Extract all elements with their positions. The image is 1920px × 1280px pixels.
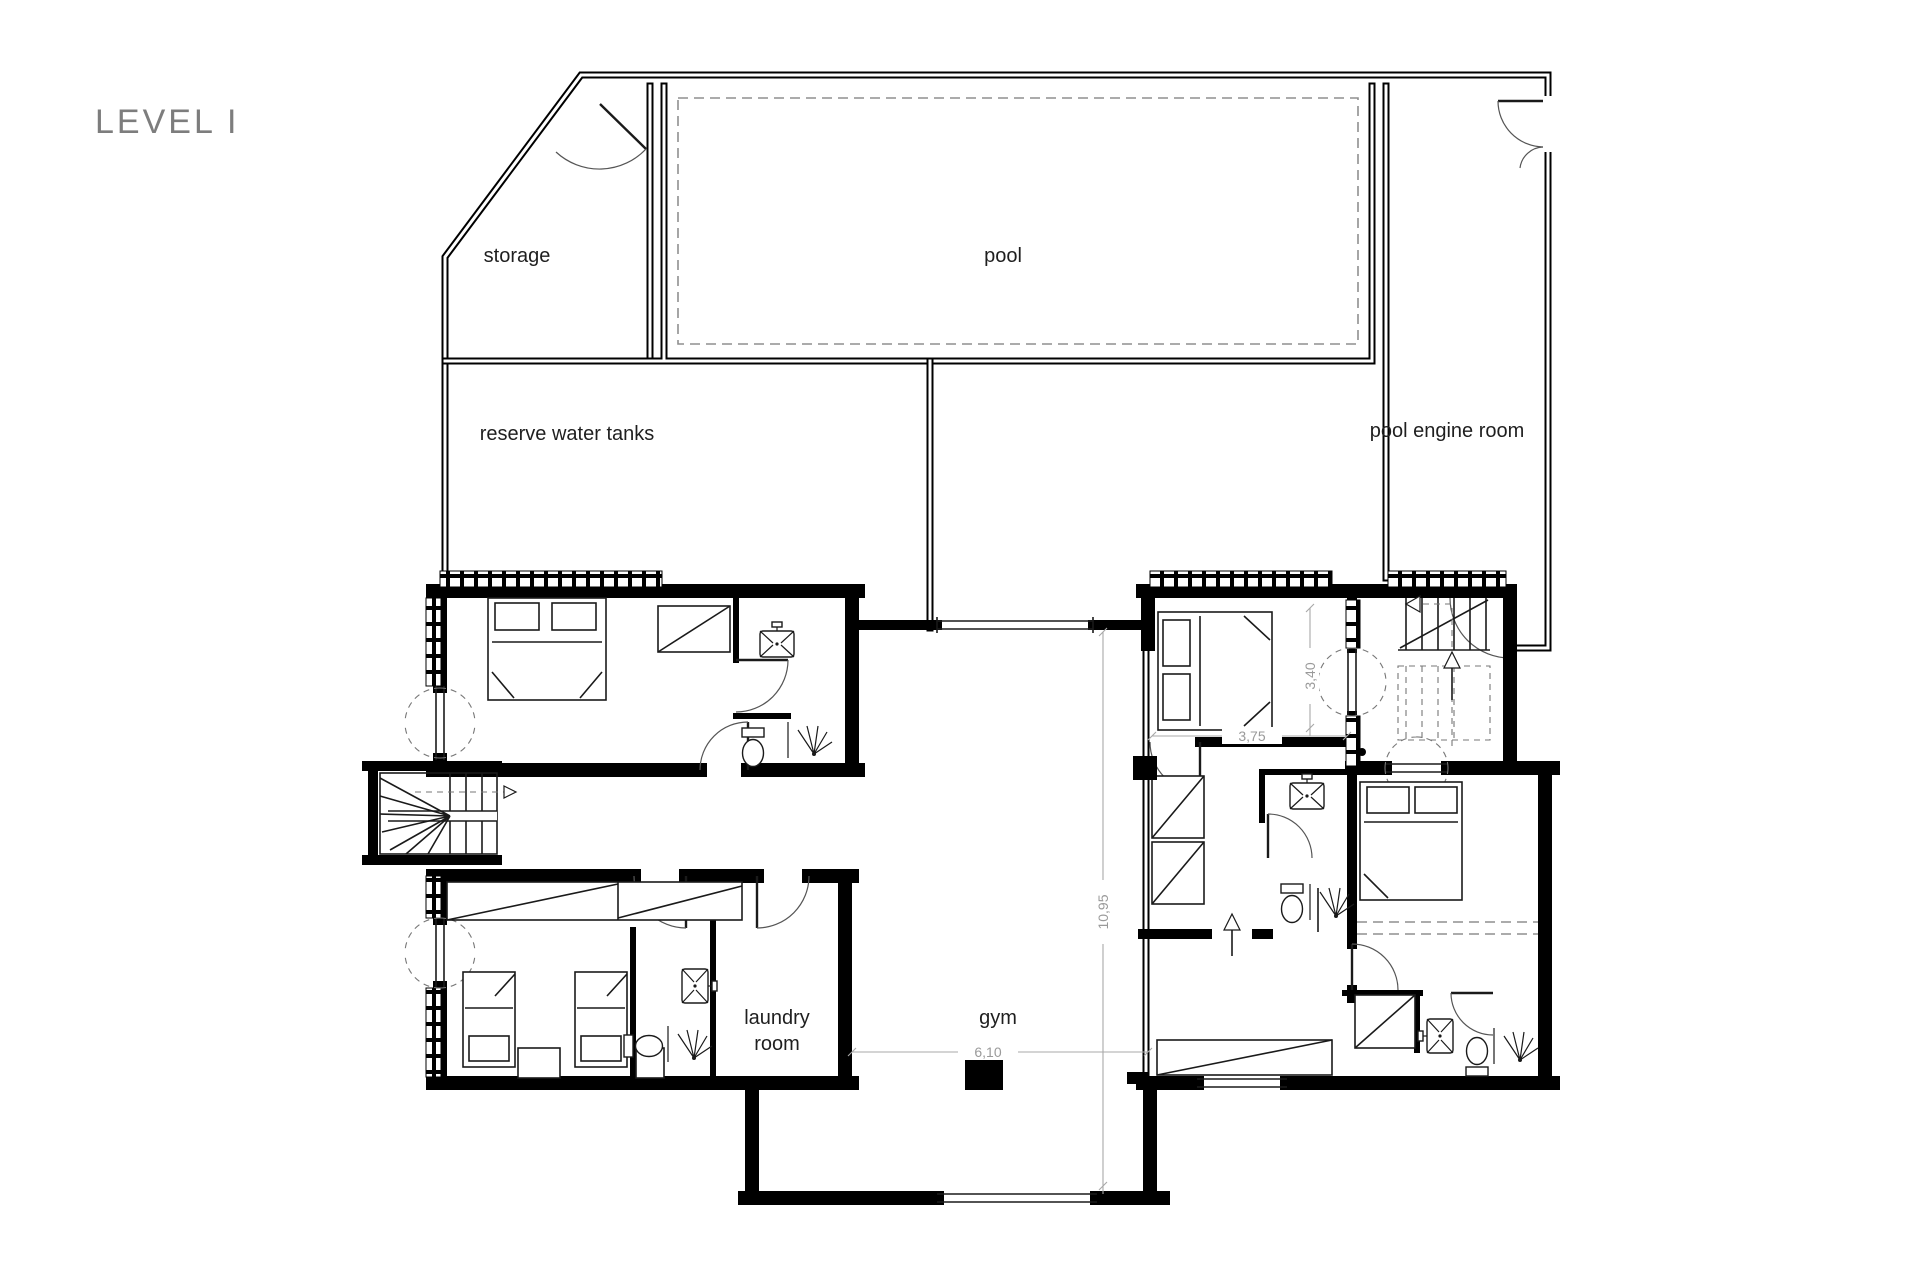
dimension-bedroom-height: 3,40 bbox=[1301, 604, 1319, 736]
floor-plan-page: 3,75 3,40 10,95 6,10 LEVEL I storage poo… bbox=[0, 0, 1920, 1280]
terrace-dashed-lines bbox=[1357, 922, 1538, 934]
room-label-laundry-line2: room bbox=[754, 1033, 800, 1055]
dimension-label: 6,10 bbox=[974, 1044, 1001, 1060]
sink-icon bbox=[1290, 774, 1324, 809]
upper-zone-walls bbox=[445, 75, 1548, 648]
sink-icon bbox=[760, 622, 794, 657]
room-label-storage: storage bbox=[484, 245, 551, 267]
stair-hall-top-door bbox=[1450, 598, 1510, 658]
mid-bath-door bbox=[1268, 814, 1312, 858]
stairs-right-straight bbox=[1398, 596, 1490, 746]
shower-icon bbox=[788, 722, 832, 758]
toilet-icon bbox=[624, 1035, 663, 1057]
laundry-door bbox=[757, 876, 809, 928]
dimension-label: 3,75 bbox=[1238, 728, 1265, 744]
page-title: LEVEL I bbox=[95, 103, 239, 141]
dimension-gym-height: 10,95 bbox=[1094, 628, 1112, 1194]
dimension-label: 3,40 bbox=[1302, 662, 1318, 689]
dimensions: 3,75 3,40 10,95 6,10 bbox=[848, 604, 1351, 1194]
french-door-master-bedroom bbox=[405, 688, 475, 758]
bed-master bbox=[488, 598, 606, 700]
shower-icon bbox=[1494, 1028, 1538, 1064]
pool-dashed-edge bbox=[678, 98, 1358, 344]
nightstand-1 bbox=[518, 1048, 560, 1078]
bath-door-left-block bbox=[736, 660, 788, 712]
bed-lower-right bbox=[1360, 782, 1462, 900]
bed-twin-2 bbox=[575, 972, 627, 1067]
hall-door-left-block bbox=[700, 722, 748, 770]
room-label-laundry-line1: laundry bbox=[744, 1007, 810, 1029]
room-label-pool: pool bbox=[984, 245, 1022, 267]
closet-right-hall-1 bbox=[1152, 776, 1204, 838]
room-label-gym: gym bbox=[979, 1007, 1017, 1029]
lower-room-door bbox=[1352, 944, 1398, 990]
closet-twin-long bbox=[447, 882, 742, 920]
closet-master bbox=[658, 606, 730, 652]
toilet-icon bbox=[1466, 1038, 1488, 1077]
dimension-gym-width: 6,10 bbox=[848, 1043, 1152, 1060]
stair-up-arrow bbox=[1444, 652, 1460, 700]
closet-lower-right bbox=[1355, 995, 1415, 1048]
sink-icon bbox=[1418, 1019, 1453, 1053]
dimension-label: 10,95 bbox=[1095, 894, 1111, 929]
toilet-icon bbox=[742, 728, 764, 767]
room-label-pool-engine-room: pool engine room bbox=[1370, 420, 1525, 442]
toilet-icon bbox=[1281, 884, 1303, 923]
floor-plan-drawing: 3,75 3,40 10,95 6,10 LEVEL I storage poo… bbox=[0, 0, 1920, 1280]
storage-entry-door bbox=[556, 104, 646, 169]
columns bbox=[965, 756, 1157, 1090]
passage-up-arrow bbox=[1224, 914, 1240, 956]
bed-right-double bbox=[1158, 612, 1272, 730]
closet-lower-long bbox=[1157, 1040, 1332, 1075]
lower-bath-door bbox=[1451, 993, 1493, 1035]
closet-right-hall-2 bbox=[1152, 842, 1204, 904]
bed-twin-1 bbox=[463, 972, 515, 1067]
room-label-reserve-water-tanks: reserve water tanks bbox=[480, 423, 655, 445]
stairs-left-winder bbox=[380, 773, 516, 854]
shower-icon bbox=[668, 1026, 712, 1062]
